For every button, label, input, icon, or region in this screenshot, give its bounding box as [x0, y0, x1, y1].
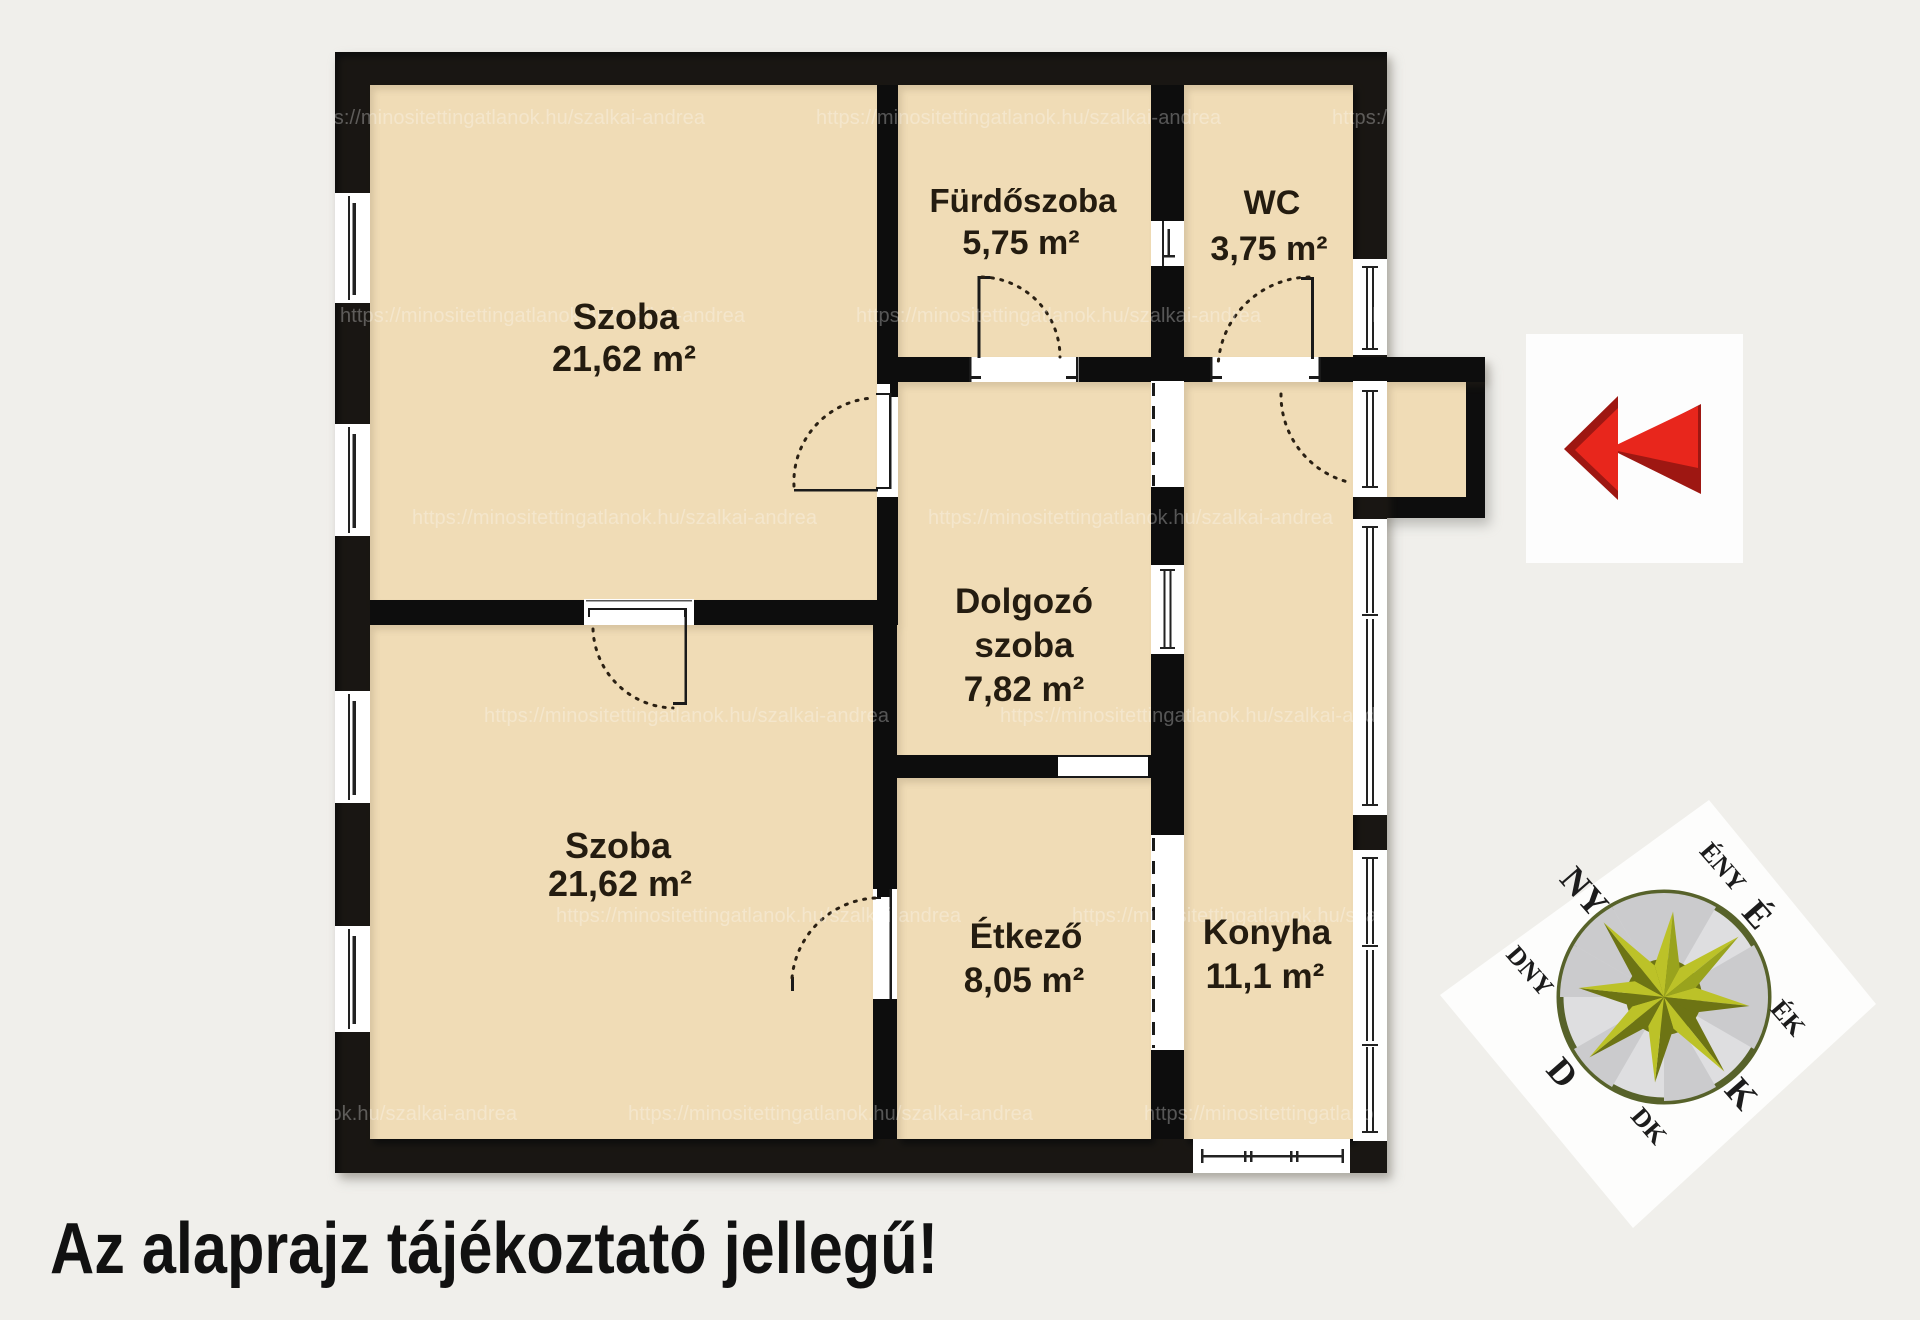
svg-text:21,62 m²: 21,62 m²	[548, 863, 692, 904]
svg-text:Fürdőszoba: Fürdőszoba	[930, 182, 1118, 219]
svg-text:7,82 m²: 7,82 m²	[964, 670, 1085, 709]
svg-text:3,75 m²: 3,75 m²	[1210, 230, 1327, 268]
svg-text:https://minositettingatlanok.h: https://minositettingatlanok.hu/szalkai-…	[300, 107, 706, 129]
svg-text:Étkező: Étkező	[970, 916, 1083, 956]
svg-text:11,1 m²: 11,1 m²	[1206, 957, 1325, 996]
svg-text:https://minositettingatlanok.h: https://minositettingatlanok.hu/szalkai-…	[556, 905, 962, 927]
svg-text:8,05 m²: 8,05 m²	[964, 961, 1085, 1000]
svg-text:Az alaprajz tájékoztató jelleg: Az alaprajz tájékoztató jellegű!	[50, 1209, 938, 1289]
svg-text:WC: WC	[1244, 184, 1301, 222]
svg-text:Szoba: Szoba	[565, 825, 672, 866]
svg-text:https://minositettingatlanok.h: https://minositettingatlanok.hu/szalkai-…	[412, 507, 818, 529]
svg-text:Dolgozó: Dolgozó	[955, 582, 1093, 621]
svg-text:Szoba: Szoba	[573, 296, 680, 337]
svg-text:https://minositettingatlanok.h: https://minositettingatlanok.hu/szalkai-…	[928, 507, 1334, 529]
svg-text:https://minositettingatlanok.h: https://minositettingatlanok.hu/szalkai-…	[856, 305, 1262, 327]
svg-text:https://minositettingatlanok.h: https://minositettingatlanok.hu/szalkai-…	[340, 305, 746, 327]
svg-text:https://minositettingatlanok.h: https://minositettingatlanok.hu/szalkai-…	[816, 107, 1222, 129]
svg-text:szoba: szoba	[974, 626, 1074, 665]
svg-text:21,62 m²: 21,62 m²	[552, 338, 696, 379]
svg-text:5,75 m²: 5,75 m²	[962, 224, 1079, 262]
svg-text:https://minositettingatlanok.h: https://minositettingatlanok.hu/szalkai-…	[628, 1103, 1034, 1125]
svg-text:https://minositettingatlanok.h: https://minositettingatlanok.hu/szalkai-…	[484, 705, 890, 727]
svg-text:Konyha: Konyha	[1203, 913, 1332, 952]
